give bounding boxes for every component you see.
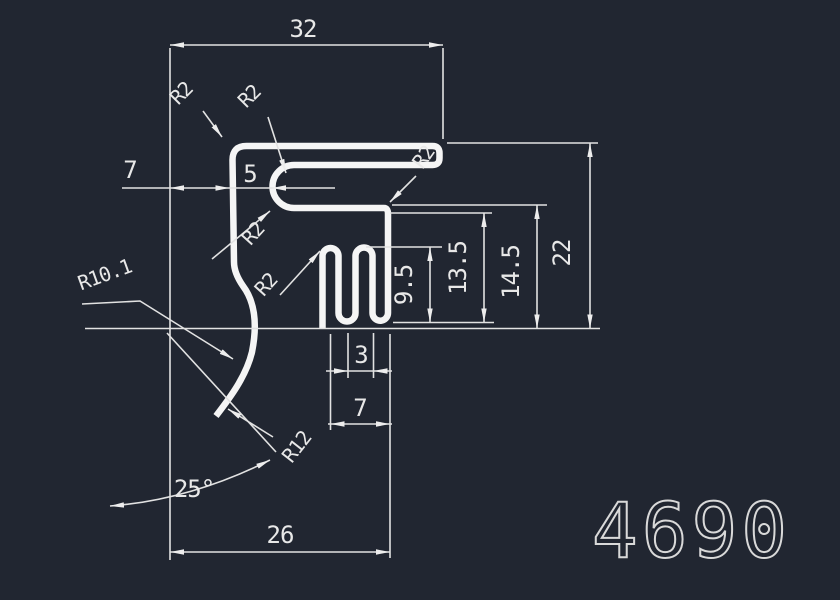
dim-label-7b: 7 <box>353 394 366 422</box>
dim-label-25deg: 25° <box>174 475 214 503</box>
dim-label-14-5: 14.5 <box>497 245 525 299</box>
dim-label-7: 7 <box>123 156 136 184</box>
part-number: 4690 <box>592 486 791 575</box>
dim-label-32: 32 <box>290 15 317 43</box>
dim-label-22: 22 <box>548 240 576 267</box>
dim-label-5: 5 <box>243 160 256 188</box>
dim-label-9-5: 9.5 <box>390 265 418 305</box>
dim-label-3: 3 <box>354 341 367 369</box>
dim-label-13-5: 13.5 <box>444 241 472 295</box>
dim-label-26: 26 <box>267 521 294 549</box>
cad-drawing-canvas: 32 7 5 9.5 13.5 14.5 22 3 7 <box>0 0 840 600</box>
